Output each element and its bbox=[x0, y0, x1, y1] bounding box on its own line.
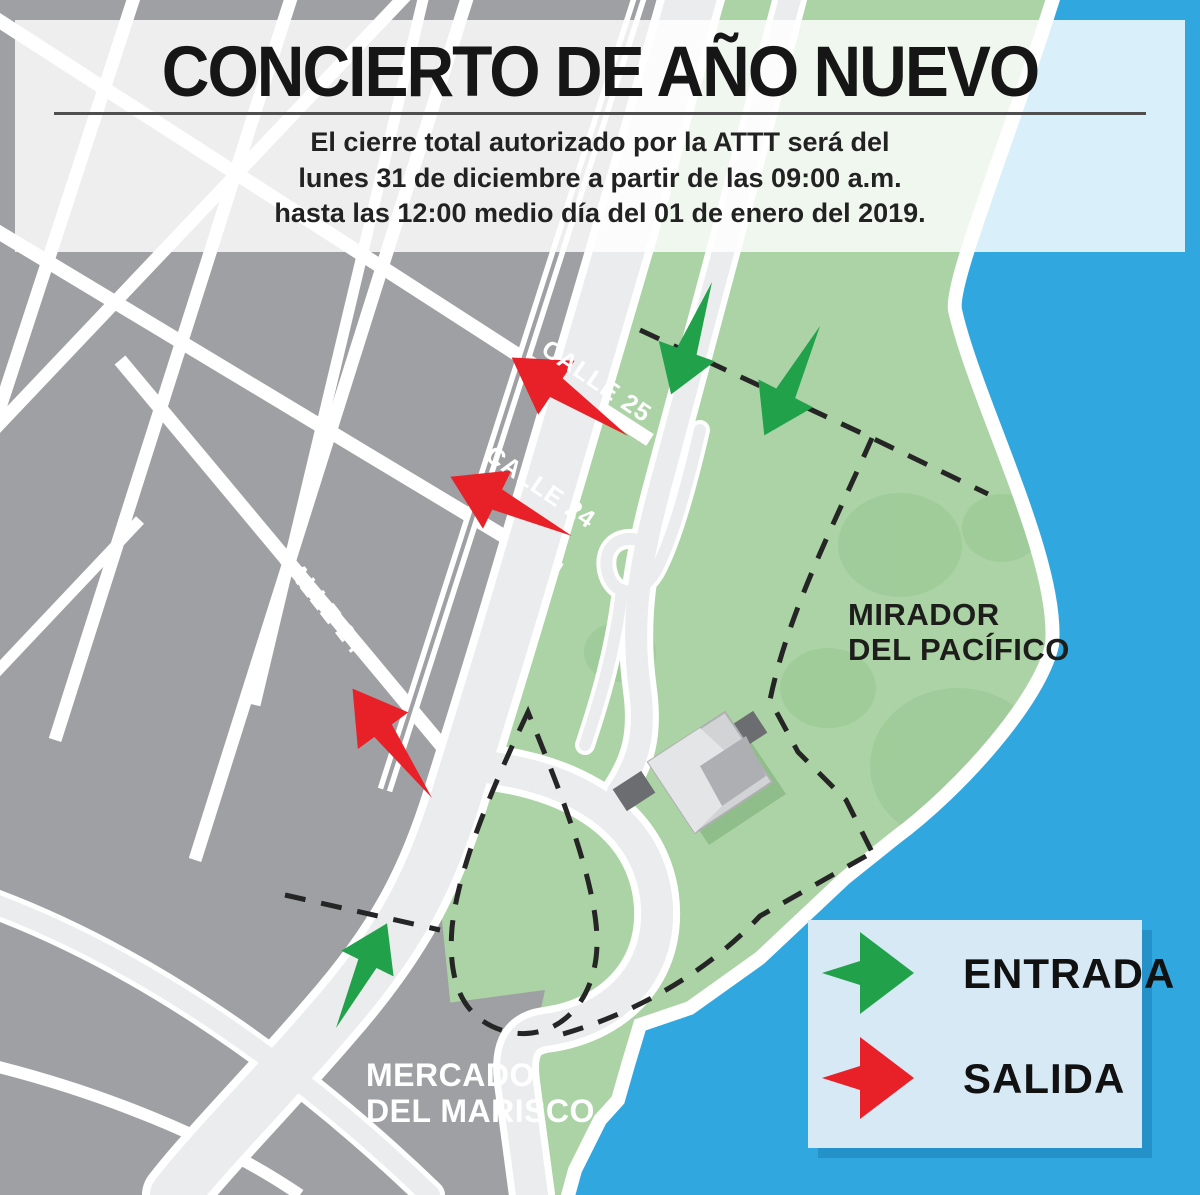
title-divider bbox=[54, 112, 1146, 115]
subtitle-line-1: El cierre total autorizado por la ATTT s… bbox=[15, 125, 1185, 161]
mercado-label-line1: MERCADO bbox=[366, 1057, 535, 1093]
mercado-label-line2: DEL MARISCO bbox=[366, 1093, 595, 1129]
legend: ENTRADA SALIDA bbox=[808, 920, 1175, 1158]
page-title: CONCIERTO DE AÑO NUEVO bbox=[162, 35, 1038, 106]
header-panel: CONCIERTO DE AÑO NUEVO El cierre total a… bbox=[15, 20, 1185, 252]
legend-entrada-label: ENTRADA bbox=[963, 950, 1175, 997]
subtitle-line-2: lunes 31 de diciembre a partir de las 09… bbox=[15, 161, 1185, 197]
mirador-label-line2: DEL PACÍFICO bbox=[848, 632, 1070, 667]
subtitle-line-3: hasta las 12:00 medio día del 01 de ener… bbox=[15, 196, 1185, 232]
legend-salida-label: SALIDA bbox=[963, 1055, 1125, 1102]
mirador-label-line1: MIRADOR bbox=[848, 597, 1000, 632]
tree-blob bbox=[838, 493, 962, 597]
infographic-root: CALLE 25 CALLE 24 CALLE 24 MIRADOR DEL P… bbox=[0, 0, 1200, 1195]
